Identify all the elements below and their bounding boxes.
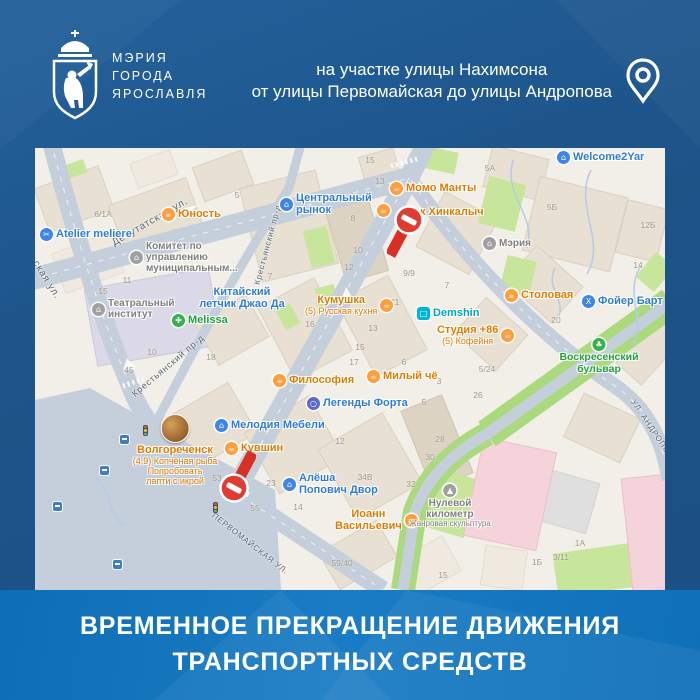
building-number: 6 [402, 357, 407, 367]
building-number: 7 [445, 280, 450, 290]
road-closure-sign-icon [212, 448, 256, 528]
poi-text: Философия [289, 374, 354, 386]
road-closure-sign-icon [387, 180, 431, 260]
building-number: 17 [349, 357, 358, 367]
bus-stop-icon [53, 502, 62, 511]
banner-text: ВРЕМЕННОЕ ПРЕКРАЩЕНИЕ ДВИЖЕНИЯ ТРАНСПОРТ… [0, 590, 700, 700]
building-number: 13 [375, 176, 384, 186]
poi-label: Китайскийлетчик Джао Да [199, 286, 285, 311]
building-number: 5/24 [479, 364, 496, 374]
poi-label: ♣Воскресенскийбульвар [559, 338, 638, 376]
building-number: 59/40 [331, 558, 352, 568]
poi-icon: □ [417, 307, 430, 320]
poi-label: ⌂АлёшаПопович Двор [283, 472, 378, 497]
building-number: 23 [266, 478, 275, 488]
building-number: 3/11 [553, 552, 569, 562]
poi-text: летчик Джао Да [199, 298, 285, 310]
building-number: 15 [98, 286, 107, 296]
poi-icon: ☕ [380, 299, 393, 312]
poi-text: институт [108, 309, 175, 320]
poi-text: Welcome2Yar [573, 151, 644, 163]
poi-text: (4,9) Копчёная рыба [133, 456, 218, 466]
poi-label: □Demshin [417, 307, 479, 320]
building-number: 16 [305, 319, 314, 329]
bear-icon [64, 61, 93, 108]
building-number: 10 [147, 347, 156, 357]
street-label: ская ул. [35, 259, 63, 301]
poi-text: Легенды Форта [323, 397, 408, 409]
poi-icon: ▲ [444, 484, 457, 497]
poi-icon: ☕ [162, 208, 175, 221]
poi-label: XФойер Барт [582, 295, 663, 308]
poi-icon: ⌂ [283, 478, 296, 491]
poi-label: ○Легенды Форта [307, 397, 408, 410]
building-number: 9/9 [403, 268, 415, 278]
poi-text: Попробовать [133, 466, 218, 476]
map-image: Депутатская ул.Крестьянский пр-дКрестьян… [35, 148, 665, 590]
building-number: 6/1А [94, 209, 112, 219]
poi-text: Столовая [521, 289, 573, 301]
location-pin-icon [624, 56, 662, 106]
poi-icon: ○ [307, 397, 320, 410]
poi-label: ☕Милый чё [367, 370, 438, 383]
poi-label: ⌂Центральныйрынок [280, 192, 372, 217]
location-line2: от улицы Первомайская до улицы Андропова [252, 81, 612, 103]
poi-label: Кумушка(5) Русская кухня☕ [305, 294, 393, 316]
poi-icon: ☕ [501, 329, 514, 342]
poi-text: Центральный [296, 192, 372, 204]
poi-text: Юность [178, 208, 221, 220]
coat-of-arms-logo [50, 30, 100, 122]
poi-text: Иоанн [335, 508, 402, 520]
building-number: 20 [551, 315, 560, 325]
poi-label: ☕Столовая [505, 289, 573, 302]
map-labels-layer: Депутатская ул.Крестьянский пр-дКрестьян… [35, 148, 665, 590]
poi-text: Кумушка [305, 294, 377, 306]
poi-text: Жанровая скульптура [409, 520, 491, 529]
poi-text: лапти с икрой [133, 476, 218, 486]
building-number: 5 [422, 397, 427, 407]
street-label: УЛ. АНДРОПОВА [629, 398, 665, 465]
poi-icon: ☕ [505, 289, 518, 302]
building-number: 45 [124, 365, 133, 375]
poi-text: Demshin [433, 307, 479, 319]
poi-label: ⌂Welcome2Yar [557, 151, 644, 164]
poi-icon: ⌂ [280, 198, 293, 211]
poi-text: Комитет по [146, 241, 238, 252]
poi-text: (5) Русская кухня [305, 306, 377, 316]
org-name-line: ГОРОДА [112, 67, 207, 85]
poi-photo [160, 414, 189, 443]
city-hall-logo: МЭРИЯ ГОРОДА ЯРОСЛАВЛЯ [50, 30, 207, 122]
poi-icon: X [582, 295, 595, 308]
announcement-poster: МЭРИЯ ГОРОДА ЯРОСЛАВЛЯ на участке улицы … [0, 0, 700, 700]
building-number: 18 [206, 352, 215, 362]
building-number: 1Б [532, 557, 542, 567]
building-number: 12Б [640, 220, 655, 230]
poi-text: муниципальным... [146, 263, 238, 274]
poi-icon: ⌂ [92, 303, 105, 316]
building-number: 15 [365, 155, 374, 165]
poi-label: ☕Юность [162, 208, 221, 221]
poi-text: Мелодия Мебели [231, 419, 325, 431]
poi-icon: ⌂ [557, 151, 570, 164]
poi-text: Воскресенский [559, 352, 638, 364]
poi-icon: ✂ [40, 228, 53, 241]
poi-text: Нулевой [409, 498, 491, 509]
building-number: 14 [293, 502, 302, 512]
bus-stop-icon [120, 435, 129, 444]
poi-label: ▲НулевойкилометрЖанровая скульптура [409, 484, 491, 529]
poi-text: бульвар [559, 364, 638, 376]
poi-text: Волгореченск [133, 444, 218, 456]
poi-text: управлению [146, 252, 238, 263]
building-number: 12 [335, 436, 344, 446]
poi-text: Мэрия [499, 238, 531, 249]
building-number: 13 [368, 323, 377, 333]
org-name: МЭРИЯ ГОРОДА ЯРОСЛАВЛЯ [112, 49, 207, 103]
building-number: 5 [235, 190, 240, 200]
poi-icon: ⌂ [483, 237, 496, 250]
building-number: 28 [435, 434, 444, 444]
poi-label: ⌂Комитет поуправлениюмуниципальным... [130, 241, 238, 275]
banner: ВРЕМЕННОЕ ПРЕКРАЩЕНИЕ ДВИЖЕНИЯ ТРАНСПОРТ… [0, 590, 700, 700]
poi-text: Студия +86 [437, 324, 498, 336]
poi-label: ☕Философия [273, 374, 354, 387]
building-number: 14 [633, 260, 642, 270]
banner-line1: ВРЕМЕННОЕ ПРЕКРАЩЕНИЕ ДВИЖЕНИЯ [80, 610, 620, 644]
building-number: 1А [575, 538, 585, 548]
poi-text: Попович Двор [299, 484, 378, 496]
poi-icon: ♣ [593, 338, 606, 351]
poi-text: Фойер Барт [598, 295, 663, 307]
bus-stop-icon [113, 560, 122, 569]
building-number: 5Б [547, 202, 557, 212]
location-text: на участке улицы Нахимсона от улицы Перв… [252, 59, 612, 103]
poi-text: Melissa [188, 314, 228, 326]
poi-text: Atelier meliere [56, 228, 132, 240]
building-number: 5А [485, 163, 495, 173]
poi-label: ⌂Мэрия [483, 237, 531, 250]
poi-icon: ⌂ [130, 251, 143, 264]
poi-label: ⌂Театральныйинститут [92, 298, 175, 320]
poi-label: ИоаннВасильевич☕ [335, 508, 418, 533]
building-number: 10 [353, 245, 362, 255]
poi-text: Алёша [299, 472, 378, 484]
building-number: 15 [355, 342, 364, 352]
poi-text: Театральный [108, 298, 175, 309]
poi-label: ⌂Мелодия Мебели [215, 419, 325, 432]
org-name-line: ЯРОСЛАВЛЯ [112, 85, 207, 103]
org-name-line: МЭРИЯ [112, 49, 207, 67]
bus-stop-icon [100, 466, 109, 475]
building-number: 11 [123, 275, 132, 285]
location-line1: на участке улицы Нахимсона [252, 59, 612, 81]
location-block: на участке улицы Нахимсона от улицы Перв… [252, 56, 662, 106]
building-number: 26 [473, 390, 482, 400]
poi-label: Студия +86(5) Кофейня☕ [437, 324, 514, 346]
poi-icon: ✚ [172, 314, 185, 327]
poi-label: ✚Melissa [172, 314, 228, 327]
poi-text: Васильевич [335, 520, 402, 532]
building-number: 12 [344, 262, 353, 272]
poi-text: (5) Кофейня [437, 336, 498, 346]
poi-text: Китайский [199, 286, 285, 298]
poi-label: ✂Atelier meliere [40, 228, 132, 241]
street-label: Крестьянский пр-д [130, 333, 206, 399]
header: МЭРИЯ ГОРОДА ЯРОСЛАВЛЯ на участке улицы … [0, 0, 700, 148]
banner-line2: ТРАНСПОРТНЫХ СРЕДСТВ [172, 646, 527, 680]
building-number: 15 [438, 570, 447, 580]
poi-icon: ☕ [273, 374, 286, 387]
building-number: 30 [425, 452, 434, 462]
poi-icon: ☕ [367, 370, 380, 383]
building-number: 7 [268, 271, 273, 281]
poi-text: Милый чё [383, 370, 438, 382]
poi-text: рынок [296, 204, 372, 216]
traffic-light-icon [143, 425, 148, 436]
